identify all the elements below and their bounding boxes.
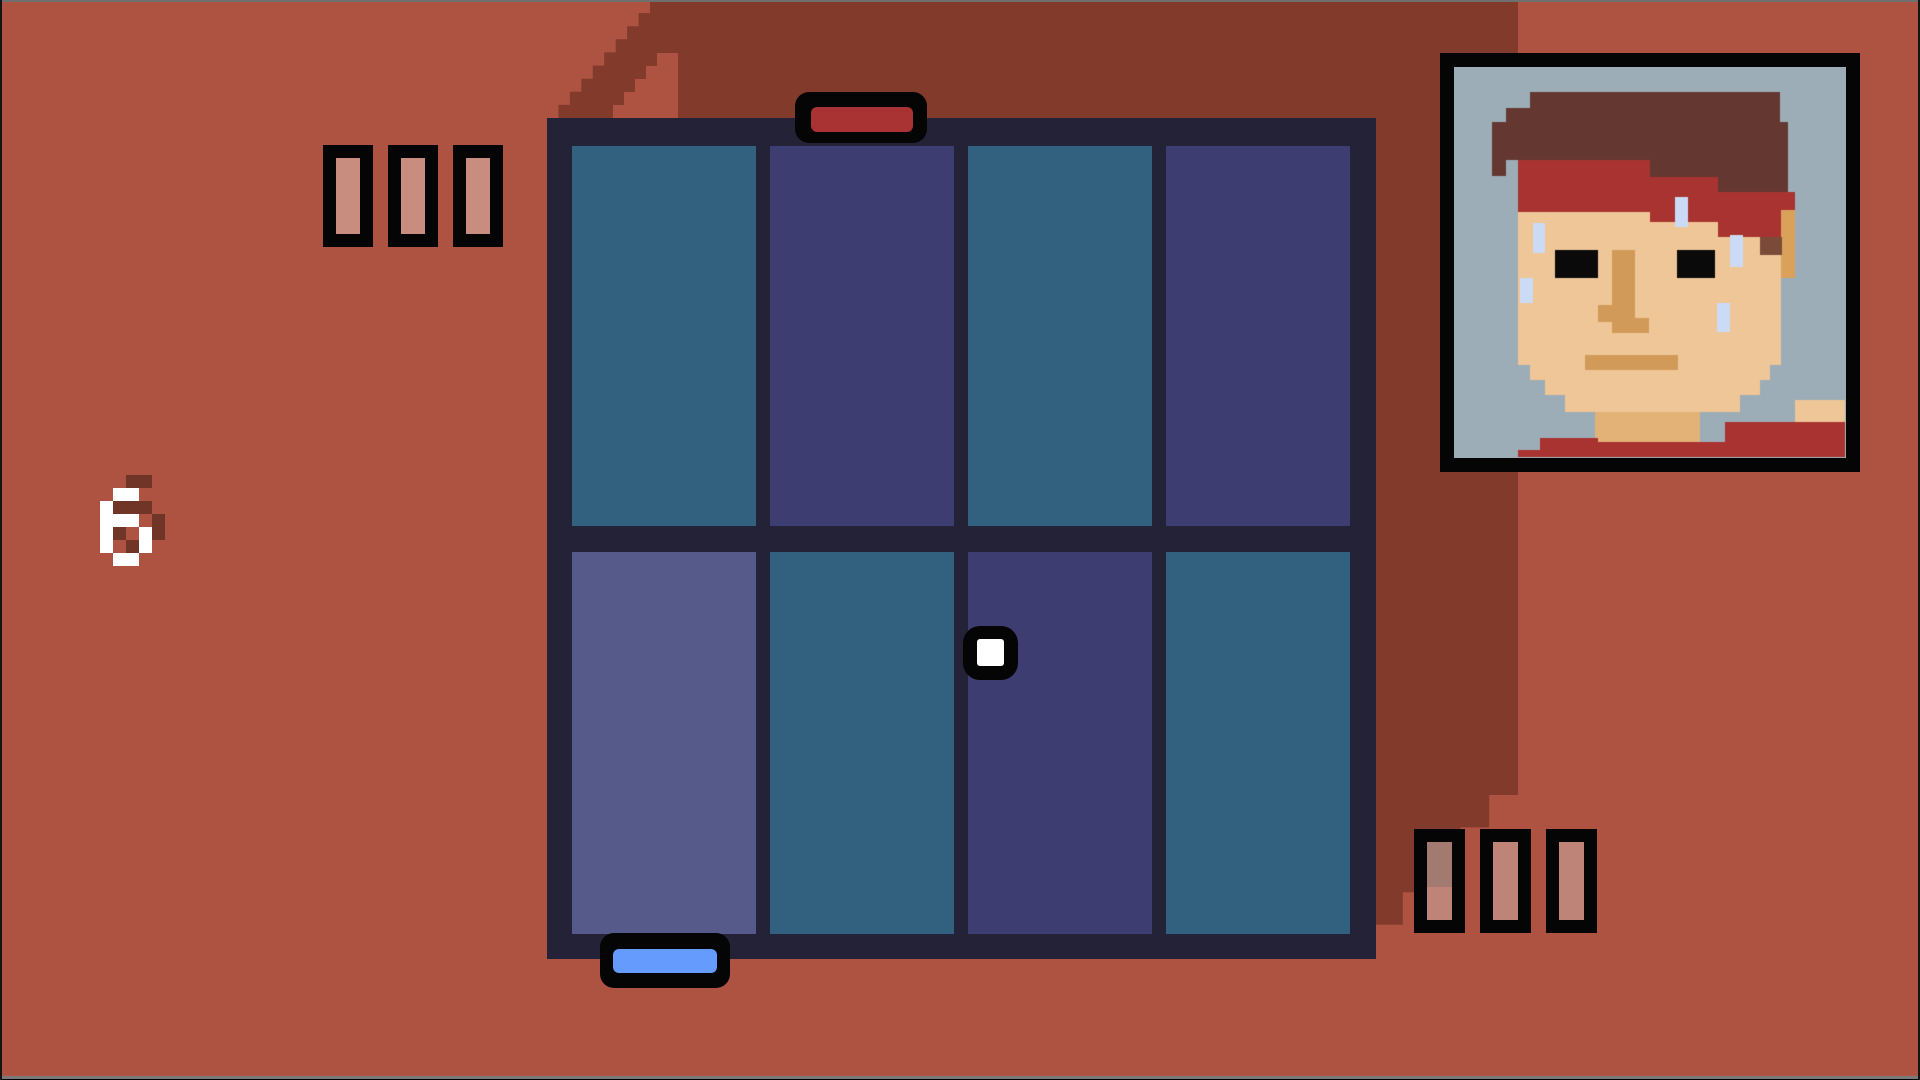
round-digit-pixel — [113, 553, 126, 566]
round-digit-pixel — [100, 501, 113, 514]
round-digit-pixel — [113, 527, 126, 540]
round-digit-pixel — [126, 514, 139, 527]
round-digit-pixel — [139, 501, 152, 514]
round-counter: 6 — [100, 475, 166, 567]
score-tally — [388, 145, 438, 247]
round-digit-pixel — [139, 540, 152, 553]
ball — [963, 626, 1018, 680]
window-edge-bottom — [0, 1076, 1920, 1080]
paddle-bottom-blue[interactable] — [600, 933, 730, 988]
court-cell-r1c4 — [1166, 146, 1350, 526]
player-portrait-pixels — [1454, 67, 1846, 458]
round-digit-pixel — [113, 488, 126, 501]
round-digit-pixel — [100, 527, 113, 540]
window-edge-left — [0, 0, 2, 1080]
round-digit-pixel — [126, 488, 139, 501]
score-tally — [1414, 829, 1465, 933]
court-cell-r2c2 — [770, 552, 954, 934]
round-digit-pixel — [100, 514, 113, 527]
round-digit-pixel — [126, 475, 139, 488]
round-digit-pixel — [126, 540, 139, 553]
ball-core — [977, 639, 1004, 666]
paddle-top-red-core — [811, 107, 913, 132]
window-edge-top — [0, 0, 1920, 2]
round-digit-pixel — [113, 514, 126, 527]
score-tallies-top-left — [323, 145, 518, 247]
round-digit-pixel — [152, 527, 165, 540]
court-cell-r1c2 — [770, 146, 954, 526]
court-cell-r1c1 — [572, 146, 756, 526]
court-cell-r2c3 — [968, 552, 1152, 934]
score-tally — [1480, 829, 1531, 933]
round-digit-pixel — [113, 501, 126, 514]
round-digit-pixel — [100, 540, 113, 553]
round-digit-pixel — [126, 553, 139, 566]
score-tally — [323, 145, 373, 247]
round-digit-pixel — [152, 514, 165, 527]
game-scene[interactable]: 6 — [0, 0, 1920, 1080]
score-tally — [1546, 829, 1597, 933]
score-tallies-bottom-right — [1414, 829, 1612, 933]
court-cell-r2c1 — [572, 552, 756, 934]
court-cell-r2c4 — [1166, 552, 1350, 934]
score-tally — [453, 145, 503, 247]
round-digit-pixel — [139, 475, 152, 488]
round-digit-pixel — [139, 527, 152, 540]
court-cell-r1c3 — [968, 146, 1152, 526]
player-portrait — [1440, 53, 1860, 472]
paddle-top-red[interactable] — [795, 92, 927, 143]
round-digit-pixel — [126, 501, 139, 514]
paddle-bottom-blue-core — [613, 949, 717, 973]
game-court — [547, 118, 1376, 959]
